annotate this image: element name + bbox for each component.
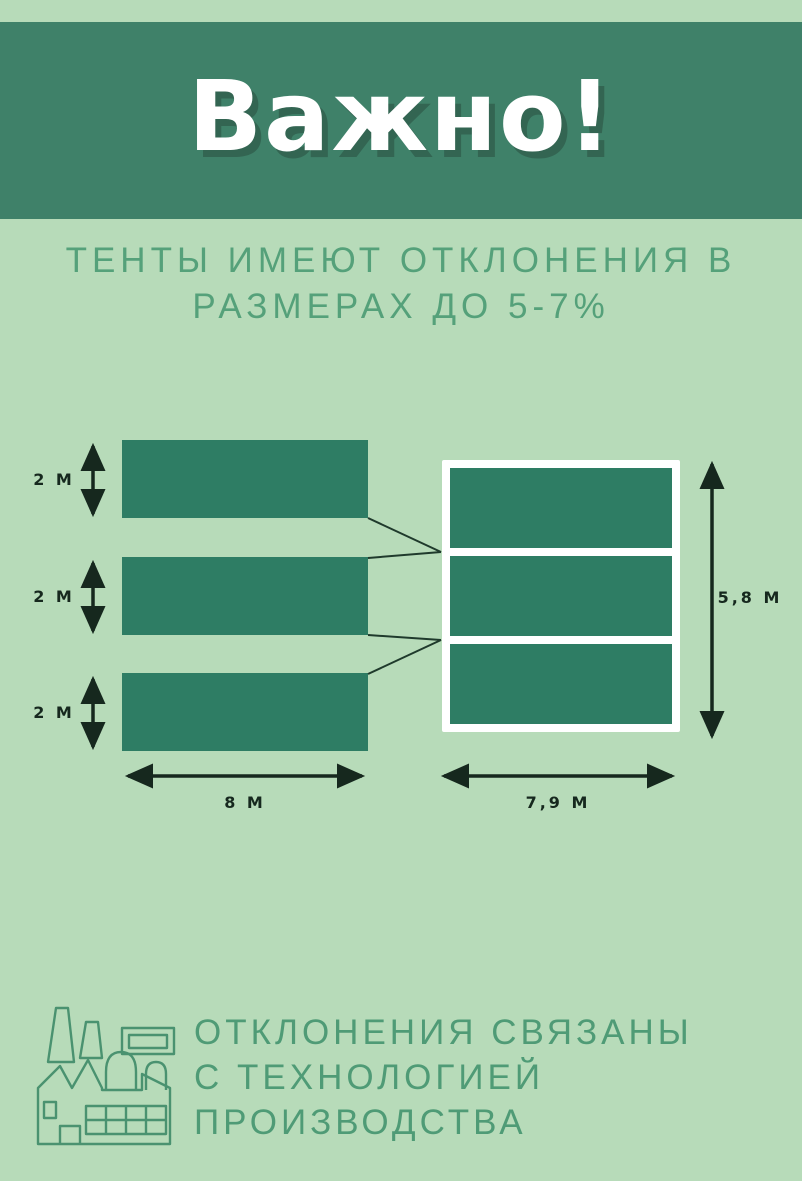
connector-line-3 xyxy=(368,635,441,640)
dimension-diagram: 2 М 2 М 2 М 8 М 5,8 М 7,9 М xyxy=(0,420,802,820)
height-label-3: 2 М xyxy=(33,703,75,722)
footer-text: ОТКЛОНЕНИЯ СВЯЗАНЫ С ТЕХНОЛОГИЕЙ ПРОИЗВО… xyxy=(194,1010,693,1145)
subtitle: ТЕНТЫ ИМЕЮТ ОТКЛОНЕНИЯ В РАЗМЕРАХ ДО 5-7… xyxy=(0,238,802,330)
assembled-section-3 xyxy=(450,644,672,724)
connector-line-4 xyxy=(368,640,441,674)
assembled-width-label: 7,9 М xyxy=(526,793,591,812)
header-band: Важно! xyxy=(0,22,802,219)
assembled-height-label: 5,8 М xyxy=(718,588,783,607)
panel-rect-1 xyxy=(122,440,368,518)
assembled-section-1 xyxy=(450,468,672,548)
width-label-left: 8 М xyxy=(224,793,266,812)
subtitle-line-1: ТЕНТЫ ИМЕЮТ ОТКЛОНЕНИЯ В xyxy=(0,238,802,284)
factory-icon xyxy=(30,1002,178,1150)
panel-rect-2 xyxy=(122,557,368,635)
height-label-1: 2 М xyxy=(33,470,75,489)
poster-background: Важно! ТЕНТЫ ИМЕЮТ ОТКЛОНЕНИЯ В РАЗМЕРАХ… xyxy=(0,0,802,1181)
connector-line-1 xyxy=(368,518,441,552)
footer-text-line-1: ОТКЛОНЕНИЯ СВЯЗАНЫ xyxy=(194,1010,693,1055)
height-label-2: 2 М xyxy=(33,587,75,606)
subtitle-line-2: РАЗМЕРАХ ДО 5-7% xyxy=(0,284,802,330)
footer-text-line-2: С ТЕХНОЛОГИЕЙ xyxy=(194,1055,693,1100)
header-title: Важно! xyxy=(188,68,614,173)
connector-line-2 xyxy=(368,552,441,558)
footer-text-line-3: ПРОИЗВОДСТВА xyxy=(194,1100,693,1145)
panel-rect-3 xyxy=(122,673,368,751)
assembled-section-2 xyxy=(450,556,672,636)
